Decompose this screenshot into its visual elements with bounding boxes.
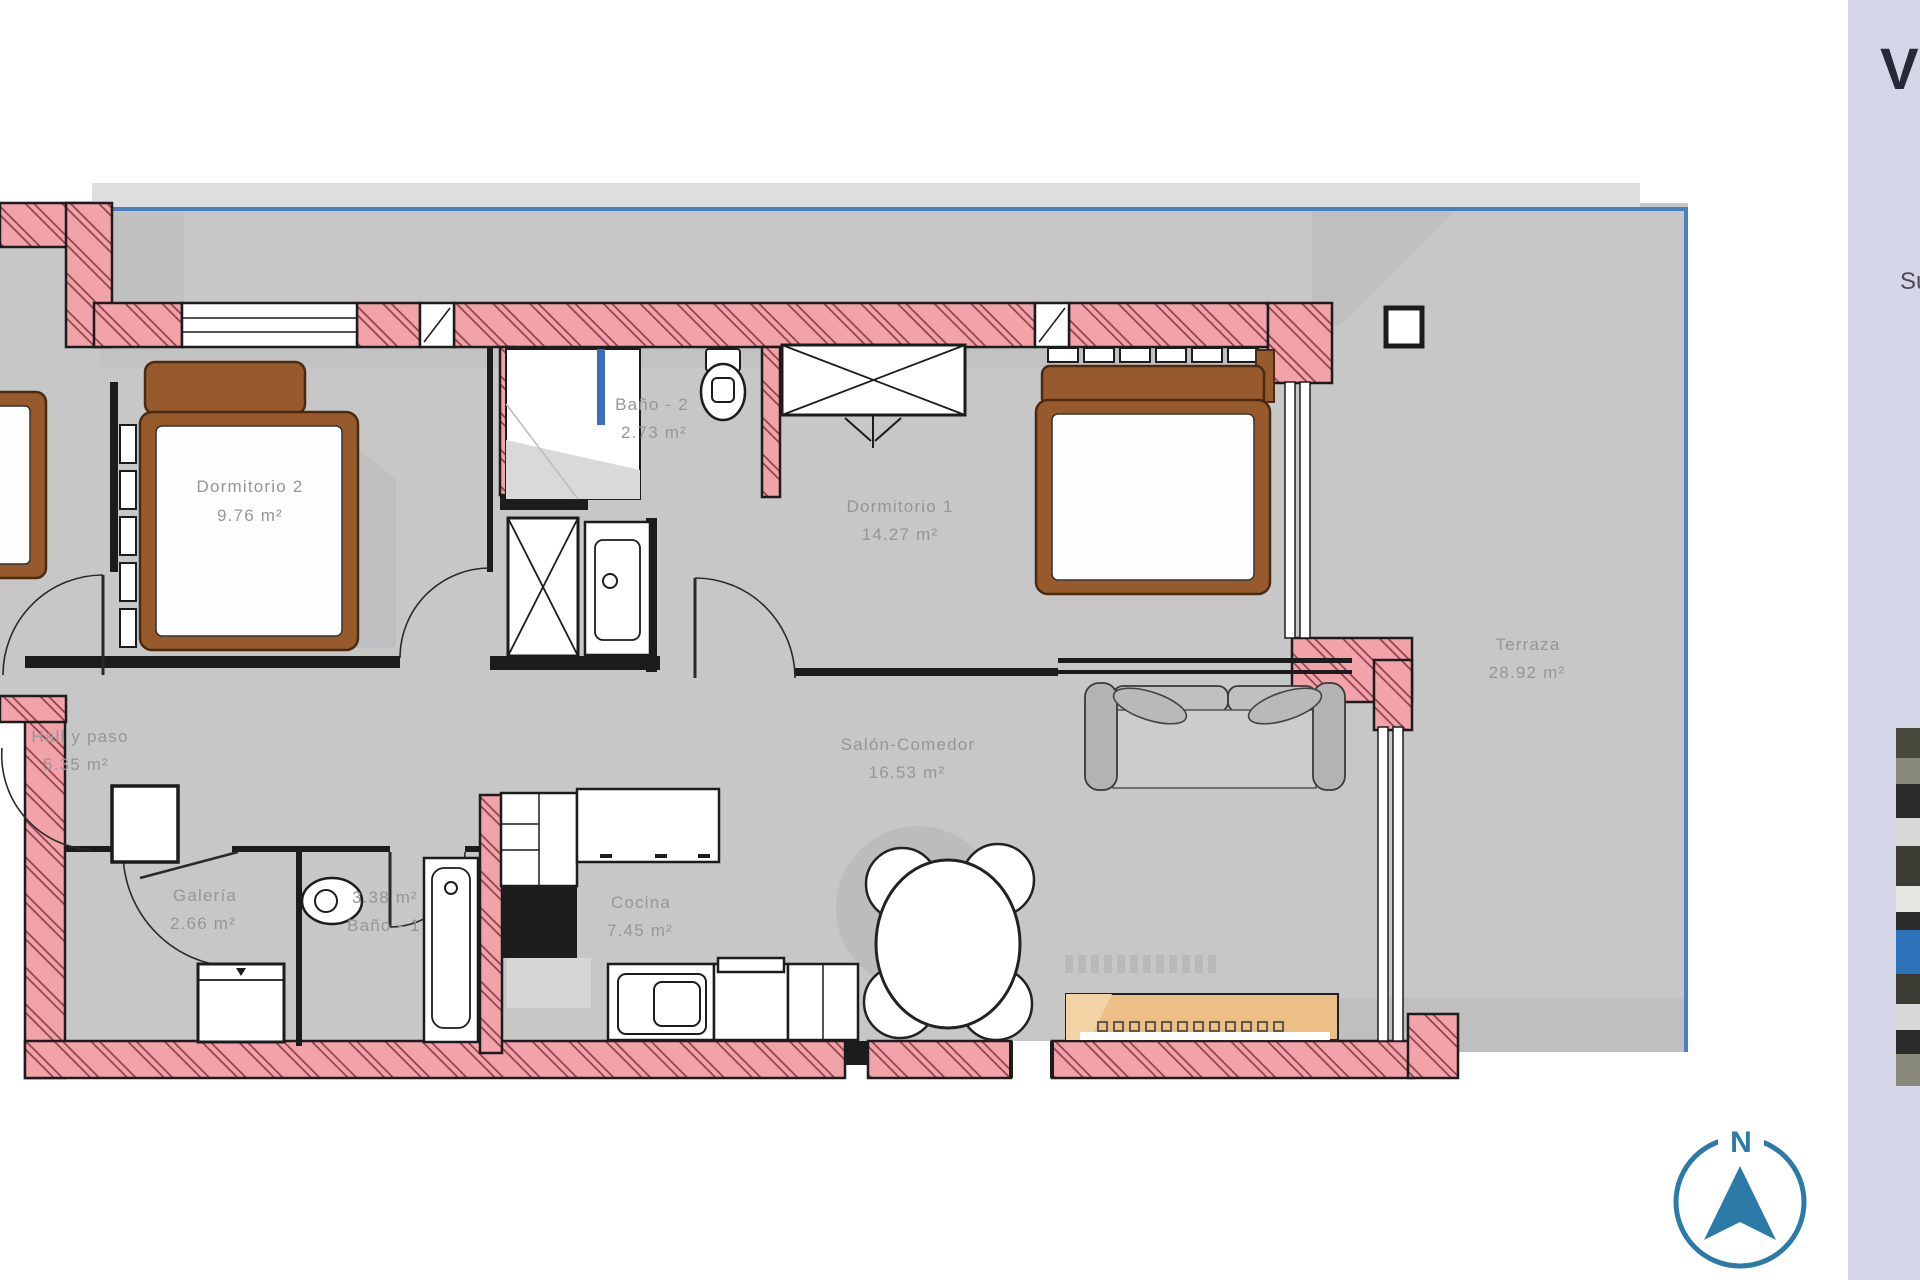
room-label-dormitorio-1: Dormitorio 1: [847, 497, 954, 516]
shower-bano-2: [506, 349, 640, 499]
north-arrow-icon: [1704, 1166, 1776, 1240]
room-label-bano-1: Baño - 1: [347, 916, 421, 935]
sidebar-subtitle-partial: Su: [1900, 268, 1920, 296]
right-sidebar-panel: V Su: [1848, 0, 1920, 1280]
hall-cabinet: [112, 786, 178, 862]
floor-plan-drawing: Dormitorio 2 9.76 m² Baño - 2 2.73 m² Do…: [0, 0, 1920, 1280]
toilet-bano-2: [701, 349, 745, 420]
building-photo-thumbnail: [1896, 728, 1920, 1086]
compass-north-label: N: [1730, 1126, 1752, 1159]
terrace-pillar: [1386, 308, 1422, 346]
room-area-bano-1: 3.38 m²: [352, 888, 418, 907]
wardrobe-corridor: [508, 518, 578, 656]
room-area-hall: 5.35 m²: [43, 755, 109, 774]
room-label-hall: Hall y paso: [31, 727, 128, 746]
room-area-dormitorio-2: 9.76 m²: [217, 506, 283, 525]
room-area-terraza: 28.92 m²: [1489, 663, 1566, 682]
bed-dormitorio-1: [1036, 348, 1274, 594]
bed-partial-left-room: [0, 392, 46, 578]
floor-plan-page: Dormitorio 2 9.76 m² Baño - 2 2.73 m² Do…: [0, 0, 1920, 1280]
bottom-wall-door: [1011, 1041, 1052, 1078]
bathtub-bano-1: [424, 858, 478, 1042]
room-label-cocina: Cocina: [611, 893, 671, 912]
sideboard: [1066, 994, 1338, 1040]
room-label-terraza: Terraza: [1495, 635, 1560, 654]
room-label-dormitorio-2: Dormitorio 2: [197, 477, 304, 496]
room-area-cocina: 7.45 m²: [607, 921, 673, 940]
sidebar-title-partial: V: [1880, 36, 1920, 103]
window-dormitorio-2: [182, 303, 357, 347]
room-area-salon: 16.53 m²: [869, 763, 946, 782]
sofa: [1085, 681, 1345, 790]
room-area-dormitorio-1: 14.27 m²: [862, 525, 939, 544]
room-area-galeria: 2.66 m²: [170, 914, 236, 933]
washing-machine-galeria: [198, 964, 284, 1042]
room-label-galeria: Galería: [173, 886, 237, 905]
washbasin-corridor: [585, 522, 650, 655]
dining-table-set: [864, 844, 1034, 1040]
room-area-bano-2: 2.73 m²: [621, 423, 687, 442]
room-label-bano-2: Baño - 2: [615, 395, 689, 414]
room-label-salon: Salón-Comedor: [841, 735, 976, 754]
north-arrow-compass: N: [1676, 1126, 1804, 1266]
